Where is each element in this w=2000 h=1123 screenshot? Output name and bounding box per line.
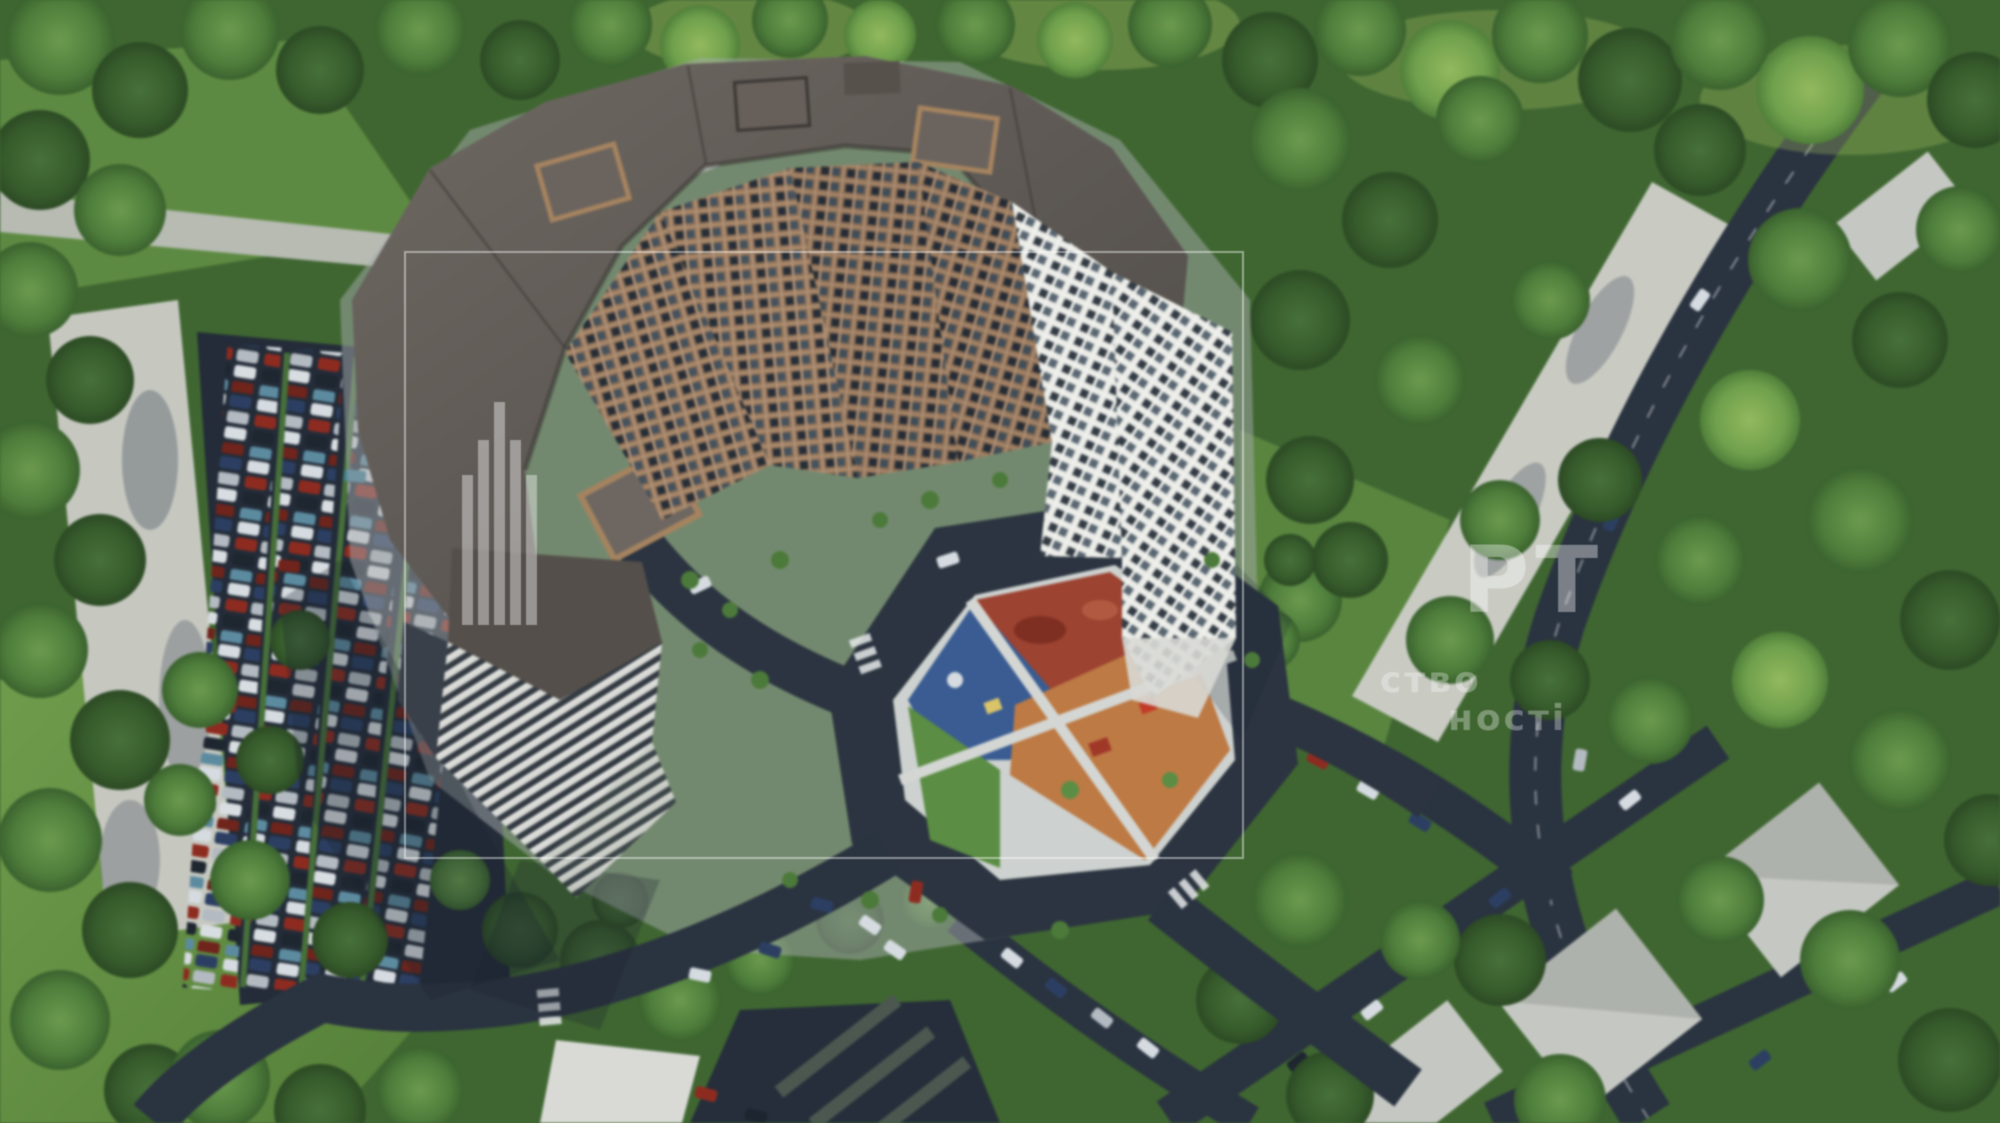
aerial-render: РТ ство ності	[0, 0, 2000, 1123]
watermark-layer: РТ ство ності	[0, 0, 2000, 1123]
watermark-small-text-1: ство	[1380, 660, 1482, 701]
watermark-small-text-2: ності	[1448, 698, 1567, 739]
watermark-logo-bars-icon	[462, 402, 537, 625]
watermark-large-text: РТ	[1462, 527, 1604, 634]
